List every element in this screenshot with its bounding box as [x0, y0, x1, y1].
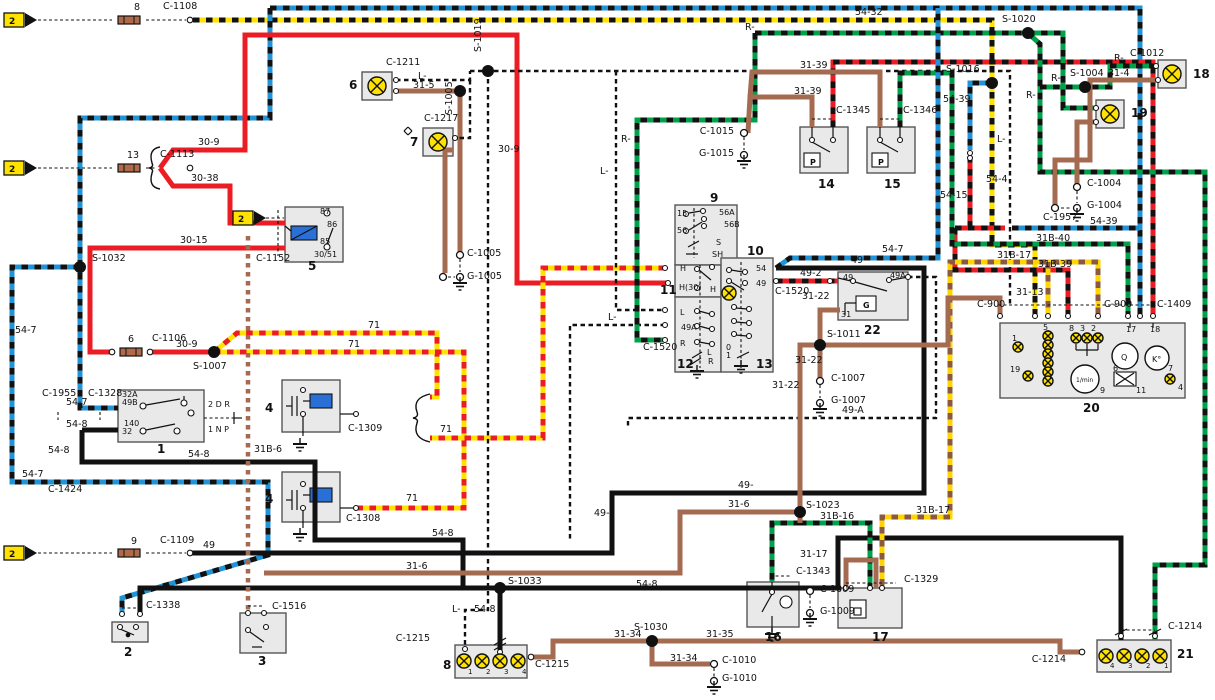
label: 16: [765, 630, 782, 644]
detail-line: [404, 127, 408, 131]
label: 17: [1126, 325, 1136, 334]
label: 31-17: [800, 549, 828, 560]
label: S-1032: [92, 253, 126, 264]
label: 20: [1083, 401, 1100, 415]
label: R-: [1114, 53, 1124, 64]
splice-S-1030: [646, 635, 658, 647]
pin: [140, 428, 146, 434]
label: C-1309: [348, 423, 382, 434]
label: 54-8: [188, 449, 210, 460]
label: 21: [1177, 647, 1194, 661]
label: 54-7: [15, 325, 37, 336]
label: 6: [349, 78, 357, 92]
pin: [727, 268, 732, 273]
label: 31-6: [406, 561, 428, 572]
label: 54-15: [940, 190, 968, 201]
label: 31: [841, 310, 851, 319]
pin: [1096, 314, 1101, 319]
label: 18: [1150, 325, 1160, 334]
label: 15: [677, 209, 687, 218]
pin: [701, 209, 706, 214]
label: 8: [134, 2, 140, 13]
label: C-1215: [535, 659, 569, 670]
label: 9: [710, 191, 718, 205]
detail-line: [404, 131, 408, 135]
pin: [880, 586, 885, 591]
label: G-1010: [722, 673, 757, 684]
label: 54-4: [986, 174, 1008, 185]
pin: [246, 628, 251, 633]
pin: [868, 586, 873, 591]
wire-blue-54-39-v: [970, 83, 992, 150]
label: 31B-40: [1036, 233, 1070, 244]
label: 30-15: [180, 235, 208, 246]
label: 6: [128, 334, 134, 345]
label: 54-8: [432, 528, 454, 539]
label: S-1011: [827, 329, 861, 340]
pin: [394, 78, 399, 83]
pin: [968, 151, 973, 156]
label: C-1424: [48, 484, 82, 495]
label: 9: [1100, 386, 1105, 395]
pin: [663, 308, 668, 313]
pin: [301, 506, 306, 511]
pin: [264, 625, 269, 630]
label: 9: [131, 536, 137, 547]
wiring-diagram-page: 8C-110854-3213C-111330-930-3830-156C-110…: [0, 0, 1215, 700]
label: C-1520: [643, 342, 677, 353]
wire-red-30-38: [160, 168, 285, 223]
label: 31-22: [802, 291, 830, 302]
connector-G-1004: [1074, 184, 1081, 191]
splice-S-1032: [74, 261, 86, 273]
label: P: [878, 158, 884, 167]
label: C-1214: [1032, 654, 1066, 665]
pin: [109, 349, 115, 355]
label: S-1007: [193, 361, 227, 372]
wire-tracer-blue-54-39-v: [970, 83, 992, 150]
label: 49B: [122, 398, 138, 407]
label: 13: [127, 150, 139, 161]
label: S-1030: [634, 622, 668, 633]
label: K°: [1152, 355, 1161, 364]
label: 2: [1146, 662, 1150, 670]
label: 31B-17: [916, 505, 950, 516]
pin: [187, 165, 193, 171]
label: C-1409: [1157, 299, 1191, 310]
pin: [968, 156, 973, 161]
label: P: [810, 158, 816, 167]
label: H(30): [679, 283, 701, 292]
pin: [1151, 314, 1156, 319]
label: C-1215: [396, 633, 430, 644]
component-2: [112, 622, 148, 642]
connector-G-1009: [807, 588, 814, 595]
splice-S-1033: [494, 582, 506, 594]
pin: [770, 590, 775, 595]
pin: [998, 314, 1003, 319]
label: 31-35: [706, 629, 734, 640]
label: C-1012: [1130, 48, 1164, 59]
label: 49A: [890, 271, 906, 280]
pin: [354, 506, 359, 511]
label: C-1345: [836, 105, 870, 116]
fuse-icon: [118, 549, 140, 557]
label: 4: [265, 401, 273, 415]
pin: [831, 138, 836, 143]
label: 31B-17: [997, 250, 1031, 261]
label: C-1152: [256, 253, 290, 264]
label: S-1005: [444, 81, 455, 115]
label: G-1009: [820, 606, 855, 617]
label: 17: [872, 630, 889, 644]
pin: [174, 428, 180, 434]
pin: [1066, 314, 1071, 319]
label: 5: [308, 259, 316, 273]
label: 30/51: [314, 250, 337, 259]
label: C-1004: [1087, 178, 1121, 189]
label: 12: [677, 357, 694, 371]
label: C-1108: [163, 1, 197, 12]
pin: [780, 596, 792, 608]
pin: [727, 279, 732, 284]
splice-S-1005: [454, 85, 466, 97]
label: 1: [1012, 334, 1017, 343]
wire-brown-s1011-s1023: [800, 345, 820, 523]
pin: [1154, 64, 1159, 69]
label: 30-9: [198, 137, 220, 148]
label: C-1009: [820, 584, 854, 595]
label: S-1019: [473, 18, 484, 52]
label: C-1346: [903, 105, 937, 116]
label: C-1338: [146, 600, 180, 611]
label: 71: [348, 339, 360, 350]
component-3: [240, 613, 286, 653]
label: SH: [712, 250, 723, 259]
pin: [695, 309, 700, 314]
label: 30-9: [176, 339, 198, 350]
pin: [743, 270, 748, 275]
label: G-1005: [467, 271, 502, 282]
label: 31-39: [800, 60, 828, 71]
label: 18: [1193, 67, 1210, 81]
label: 11: [660, 283, 677, 297]
pin: [747, 334, 752, 339]
label: 2: [124, 645, 132, 659]
wire-brown-aux-gnd: [1055, 160, 1090, 205]
pin: [301, 388, 306, 393]
label: 30-38: [191, 173, 219, 184]
label: R: [708, 357, 714, 366]
wire-brown-comp7: [445, 150, 453, 273]
label: 54-7: [882, 244, 904, 255]
pin: [710, 265, 715, 270]
label: C-1005: [467, 248, 501, 259]
label: 8: [1069, 324, 1074, 333]
pin: [710, 327, 715, 332]
label: C-1308: [346, 513, 380, 524]
label: R-: [1051, 73, 1061, 84]
label: L-: [608, 312, 617, 323]
splice-S-1016: [986, 77, 998, 89]
wire-blackdash-s1019: [465, 71, 488, 647]
label: 54-7: [66, 397, 88, 408]
wire-black-bottom: [140, 588, 500, 614]
label: S-1016: [946, 64, 980, 75]
label: C-1343: [796, 566, 830, 577]
label: 1: [157, 442, 165, 456]
label: 4: [1110, 662, 1115, 670]
label: 49: [843, 273, 853, 282]
label: R-: [621, 134, 631, 145]
pin: [743, 281, 748, 286]
pin: [126, 633, 130, 637]
pin: [246, 611, 251, 616]
label: 19: [1131, 106, 1148, 120]
label: 2: [238, 215, 244, 225]
aux-G-1004: [1052, 205, 1059, 212]
wire-blackdash-49A-sw: [570, 325, 665, 540]
pin: [828, 279, 833, 284]
pin: [663, 266, 668, 271]
pin: [138, 612, 143, 617]
label: 54-39: [1090, 216, 1118, 227]
label: 56A: [719, 208, 735, 217]
pin: [906, 275, 911, 280]
pin: [898, 138, 903, 143]
brace: [413, 394, 430, 442]
label: 31-39: [794, 86, 822, 97]
label: 10: [747, 244, 764, 258]
label: C-1516: [272, 601, 306, 612]
pin: [301, 412, 306, 417]
label: 54-8: [48, 445, 70, 456]
label: 31-22: [772, 380, 800, 391]
pin: [702, 224, 707, 229]
label: 4: [522, 668, 527, 676]
wire-tracer-blue-left-trunk: [80, 8, 270, 408]
pin: [747, 307, 752, 312]
label: C-1214: [1168, 621, 1202, 632]
pin: [710, 312, 715, 317]
label: H: [710, 285, 716, 294]
wire-brown-19: [1077, 122, 1096, 160]
pin: [732, 305, 737, 310]
label: 31-4: [1108, 68, 1130, 79]
label: 71: [440, 424, 452, 435]
label: R: [680, 339, 686, 348]
label: 1: [726, 351, 731, 360]
pin: [1046, 314, 1051, 319]
label: H: [680, 264, 686, 273]
label: 54-8: [474, 604, 496, 615]
power-feed-arrow-icon: [25, 161, 37, 175]
splice-S-1020: [1022, 27, 1034, 39]
label: 71: [368, 320, 380, 331]
label: 8: [443, 658, 451, 672]
label: 22: [864, 323, 881, 337]
label: 15: [884, 177, 901, 191]
label: 3: [258, 654, 266, 668]
detail-line: [408, 127, 412, 131]
label: 1: [468, 668, 472, 676]
label: L: [707, 348, 712, 357]
wire-brown-comp8-21: [531, 641, 1080, 657]
wire-blue-left-trunk: [80, 8, 270, 408]
wire-blackdash-comp6: [396, 71, 470, 80]
label: 1/min: [1076, 377, 1093, 384]
label: S-1020: [1002, 14, 1036, 25]
label: C-900: [1104, 299, 1132, 310]
connector-G-1005: [457, 252, 464, 259]
pin: [463, 647, 468, 652]
label: 49: [203, 540, 215, 551]
pin: [695, 267, 700, 272]
connector-G-1010: [711, 661, 718, 668]
label: 2: [9, 550, 15, 560]
label: 56: [677, 226, 687, 235]
label: 5: [1043, 323, 1048, 332]
aux-G-1005: [440, 274, 447, 281]
pin: [528, 654, 534, 660]
label: 13: [756, 357, 773, 371]
label: 4: [265, 492, 273, 506]
label: 2: [1091, 324, 1096, 333]
pin: [702, 217, 707, 222]
label: S-1033: [508, 576, 542, 587]
wire-blackdash-L2: [616, 71, 665, 310]
label: 2: [9, 17, 15, 27]
label: S: [716, 238, 721, 247]
splice-S-1011: [814, 339, 826, 351]
label: R-: [1026, 90, 1036, 101]
label: 32: [122, 427, 132, 436]
label: C-1010: [722, 655, 756, 666]
fuse-icon: [118, 16, 140, 24]
label: 54-7: [22, 469, 44, 480]
pin: [1138, 314, 1143, 319]
label: C-1957: [1043, 212, 1077, 223]
splice-S-1019: [482, 65, 494, 77]
label: 87: [320, 207, 330, 216]
label: 49-: [738, 480, 754, 491]
label: 54-8: [66, 419, 88, 430]
label: C-1211: [386, 57, 420, 68]
label: 1 N P: [208, 425, 229, 434]
wiring-diagram: 8C-110854-3213C-111330-930-3830-156C-110…: [0, 0, 1215, 700]
label: 49A: [681, 323, 697, 332]
pin: [187, 17, 193, 23]
connector-G-1015: [741, 130, 748, 137]
label: G: [863, 301, 870, 310]
label: 49-: [594, 508, 610, 519]
label: 7: [1168, 364, 1173, 373]
label: 7: [410, 135, 418, 149]
pin: [1153, 634, 1158, 639]
label: L: [680, 308, 685, 317]
label: 31B-16: [820, 511, 854, 522]
label: 71: [406, 493, 418, 504]
pin: [118, 625, 123, 630]
label: 14: [818, 177, 835, 191]
pin: [1094, 106, 1099, 111]
detail-rect: [854, 608, 861, 615]
label: 4: [1178, 383, 1183, 392]
label: 54-32: [855, 7, 883, 18]
splice-S-1023: [794, 506, 806, 518]
pin: [301, 482, 306, 487]
pin: [120, 612, 125, 617]
label: 1: [1164, 662, 1168, 670]
label: 31-5: [413, 80, 435, 91]
pin: [188, 410, 194, 416]
label: C-1007: [831, 373, 865, 384]
label: 31B-39: [1038, 259, 1072, 270]
label: 54-39: [943, 94, 971, 105]
pin: [140, 403, 146, 409]
label: 31-22: [795, 355, 823, 366]
pin: [663, 323, 668, 328]
label: 30-9: [498, 144, 520, 155]
pin: [732, 332, 737, 337]
pin: [134, 625, 139, 630]
label: 49-: [851, 255, 867, 266]
label: 31-13: [1016, 287, 1044, 298]
label: 49-A: [842, 405, 864, 416]
pin: [774, 279, 779, 284]
label: G-1004: [1087, 200, 1122, 211]
power-feed-arrow-icon: [25, 13, 37, 27]
label: C-1329: [904, 574, 938, 585]
splice-S-1007: [208, 346, 220, 358]
pin: [1094, 120, 1099, 125]
label: S-1004: [1070, 68, 1104, 79]
pin: [710, 342, 715, 347]
pin: [695, 340, 700, 345]
label: 3: [504, 668, 508, 676]
label: L-: [600, 166, 609, 177]
pin: [732, 319, 737, 324]
label: 2: [9, 165, 15, 175]
fuse-icon: [120, 348, 142, 356]
label: 6: [1113, 364, 1118, 373]
label: 3: [1080, 324, 1085, 333]
pin: [181, 400, 187, 406]
label: 2 D R: [208, 400, 230, 409]
label: 49-2: [800, 268, 822, 279]
label: C-1015: [700, 126, 734, 137]
label: 31-34: [670, 653, 698, 664]
label: 54: [756, 264, 766, 273]
pin: [1033, 314, 1038, 319]
pin: [453, 136, 458, 141]
label: 56B: [724, 220, 740, 229]
label: 31-6: [728, 499, 750, 510]
pin: [878, 138, 883, 143]
pin: [354, 412, 359, 417]
power-feed-arrow-icon: [25, 546, 37, 560]
label: S-1023: [806, 500, 840, 511]
label: 85: [320, 237, 330, 246]
splice-S-1004: [1079, 81, 1091, 93]
label: 31B-6: [254, 444, 282, 455]
pin: [1119, 634, 1124, 639]
label: L-: [452, 604, 461, 615]
label: 49: [756, 279, 766, 288]
wire-brown-18: [1077, 80, 1158, 184]
pin: [810, 138, 815, 143]
connector-G-1007: [817, 378, 824, 385]
